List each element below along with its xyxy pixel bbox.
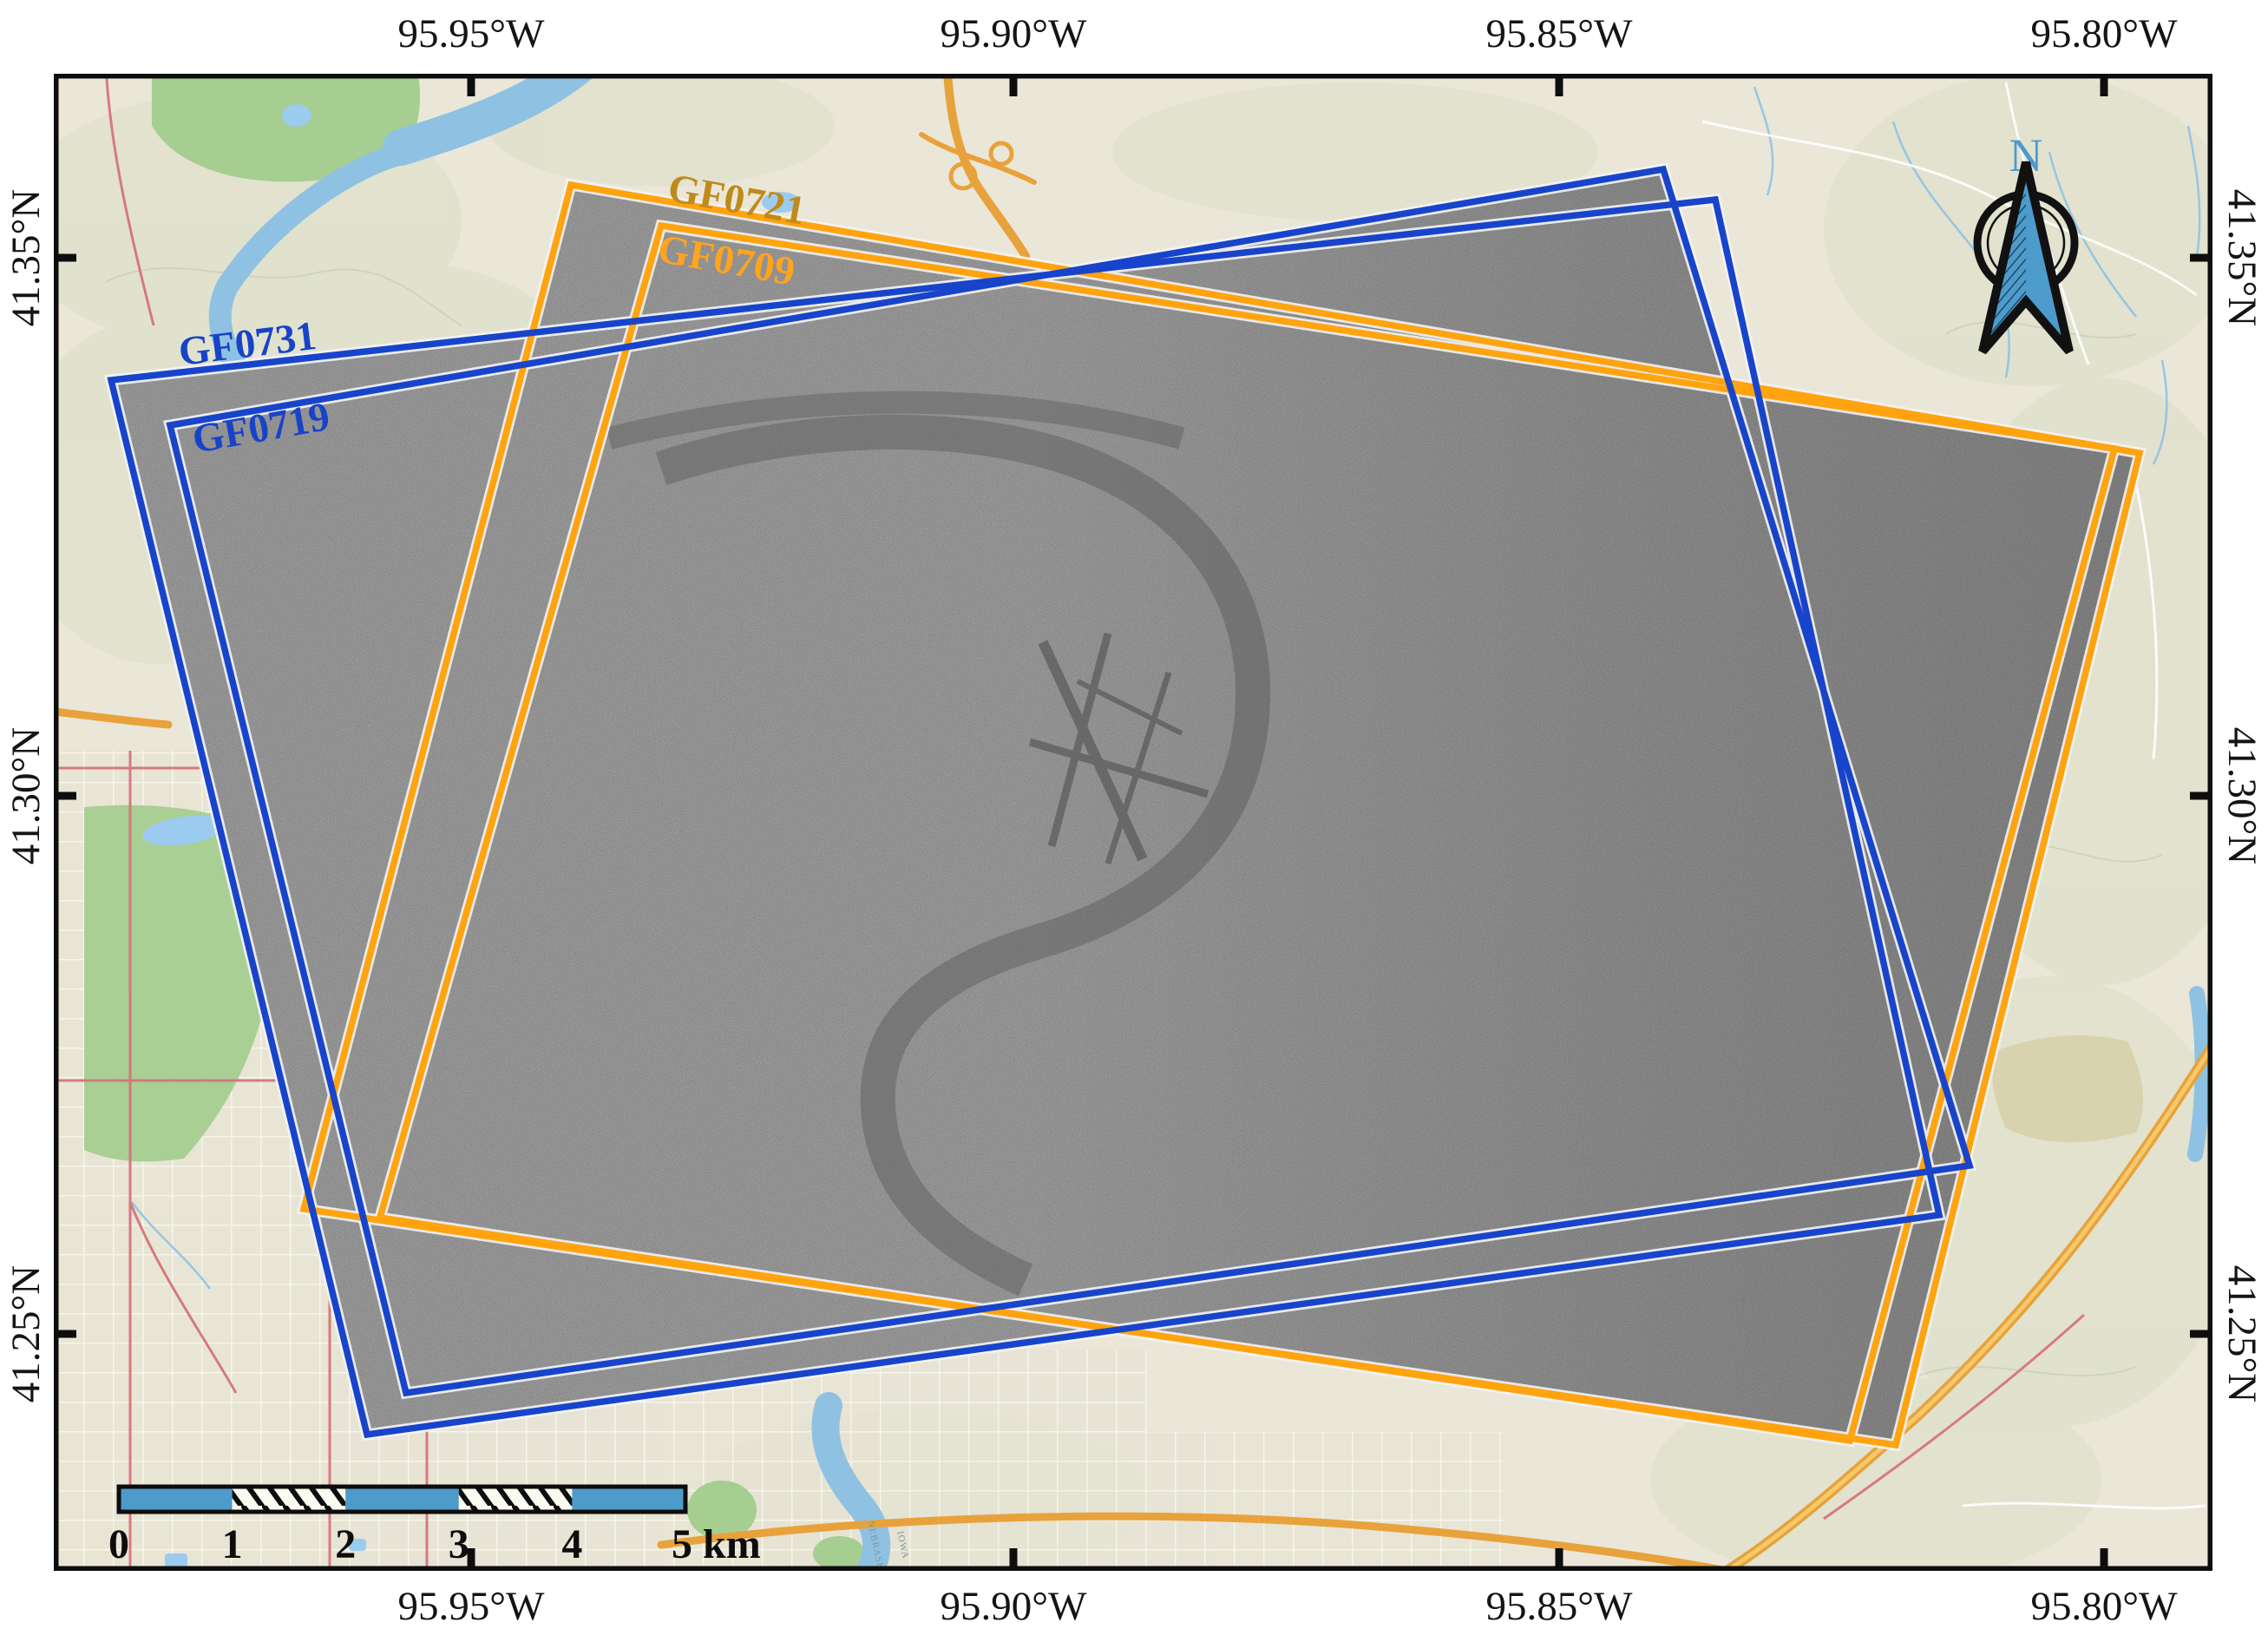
scale-bar-tick-0: 0 [108, 1521, 129, 1567]
axis-label-left-3: 41.25°N [3, 1265, 49, 1403]
axis-label-top-3: 95.85°W [1486, 10, 1633, 57]
axis-label-left-2: 41.30°N [3, 727, 49, 865]
scale-bar-segment-1 [119, 1487, 233, 1512]
scale-bar-segment-2 [233, 1487, 346, 1512]
axis-label-top-1: 95.95°W [398, 10, 545, 57]
axis-label-bottom-1: 95.95°W [398, 1583, 545, 1630]
axis-label-top-2: 95.90°W [941, 10, 1087, 57]
axis-label-right-2: 41.30°N [2219, 727, 2265, 865]
scale-bar-tick-1: 1 [222, 1521, 243, 1567]
axis-label-right-1: 41.35°N [2219, 189, 2265, 327]
scale-bar-tick-4: 4 [561, 1521, 582, 1567]
axis-label-top-4: 95.80°W [2031, 10, 2178, 57]
scale-bar-segment-3 [345, 1487, 459, 1512]
axis-label-bottom-4: 95.80°W [2031, 1583, 2178, 1630]
map-frame: GF0721 GF0709 GF0731 GF0719 NEBRASKA IOW… [54, 74, 2212, 1571]
axis-label-left-1: 41.35°N [3, 189, 49, 327]
scale-bar-segment-5 [572, 1487, 685, 1512]
scale-bar-tick-3: 3 [449, 1521, 469, 1567]
axis-label-bottom-3: 95.85°W [1486, 1583, 1633, 1630]
axis-label-bottom-2: 95.90°W [941, 1583, 1087, 1630]
scale-bar-tick-2: 2 [335, 1521, 356, 1567]
axis-label-right-3: 41.25°N [2219, 1265, 2265, 1403]
scale-bar-segment-4 [459, 1487, 573, 1512]
scale-bar-end-label: 5 km [672, 1521, 761, 1567]
map-figure: 95.95°W 95.90°W 95.85°W 95.80°W 95.95°W … [0, 0, 2268, 1642]
college-area [1992, 1035, 2143, 1142]
